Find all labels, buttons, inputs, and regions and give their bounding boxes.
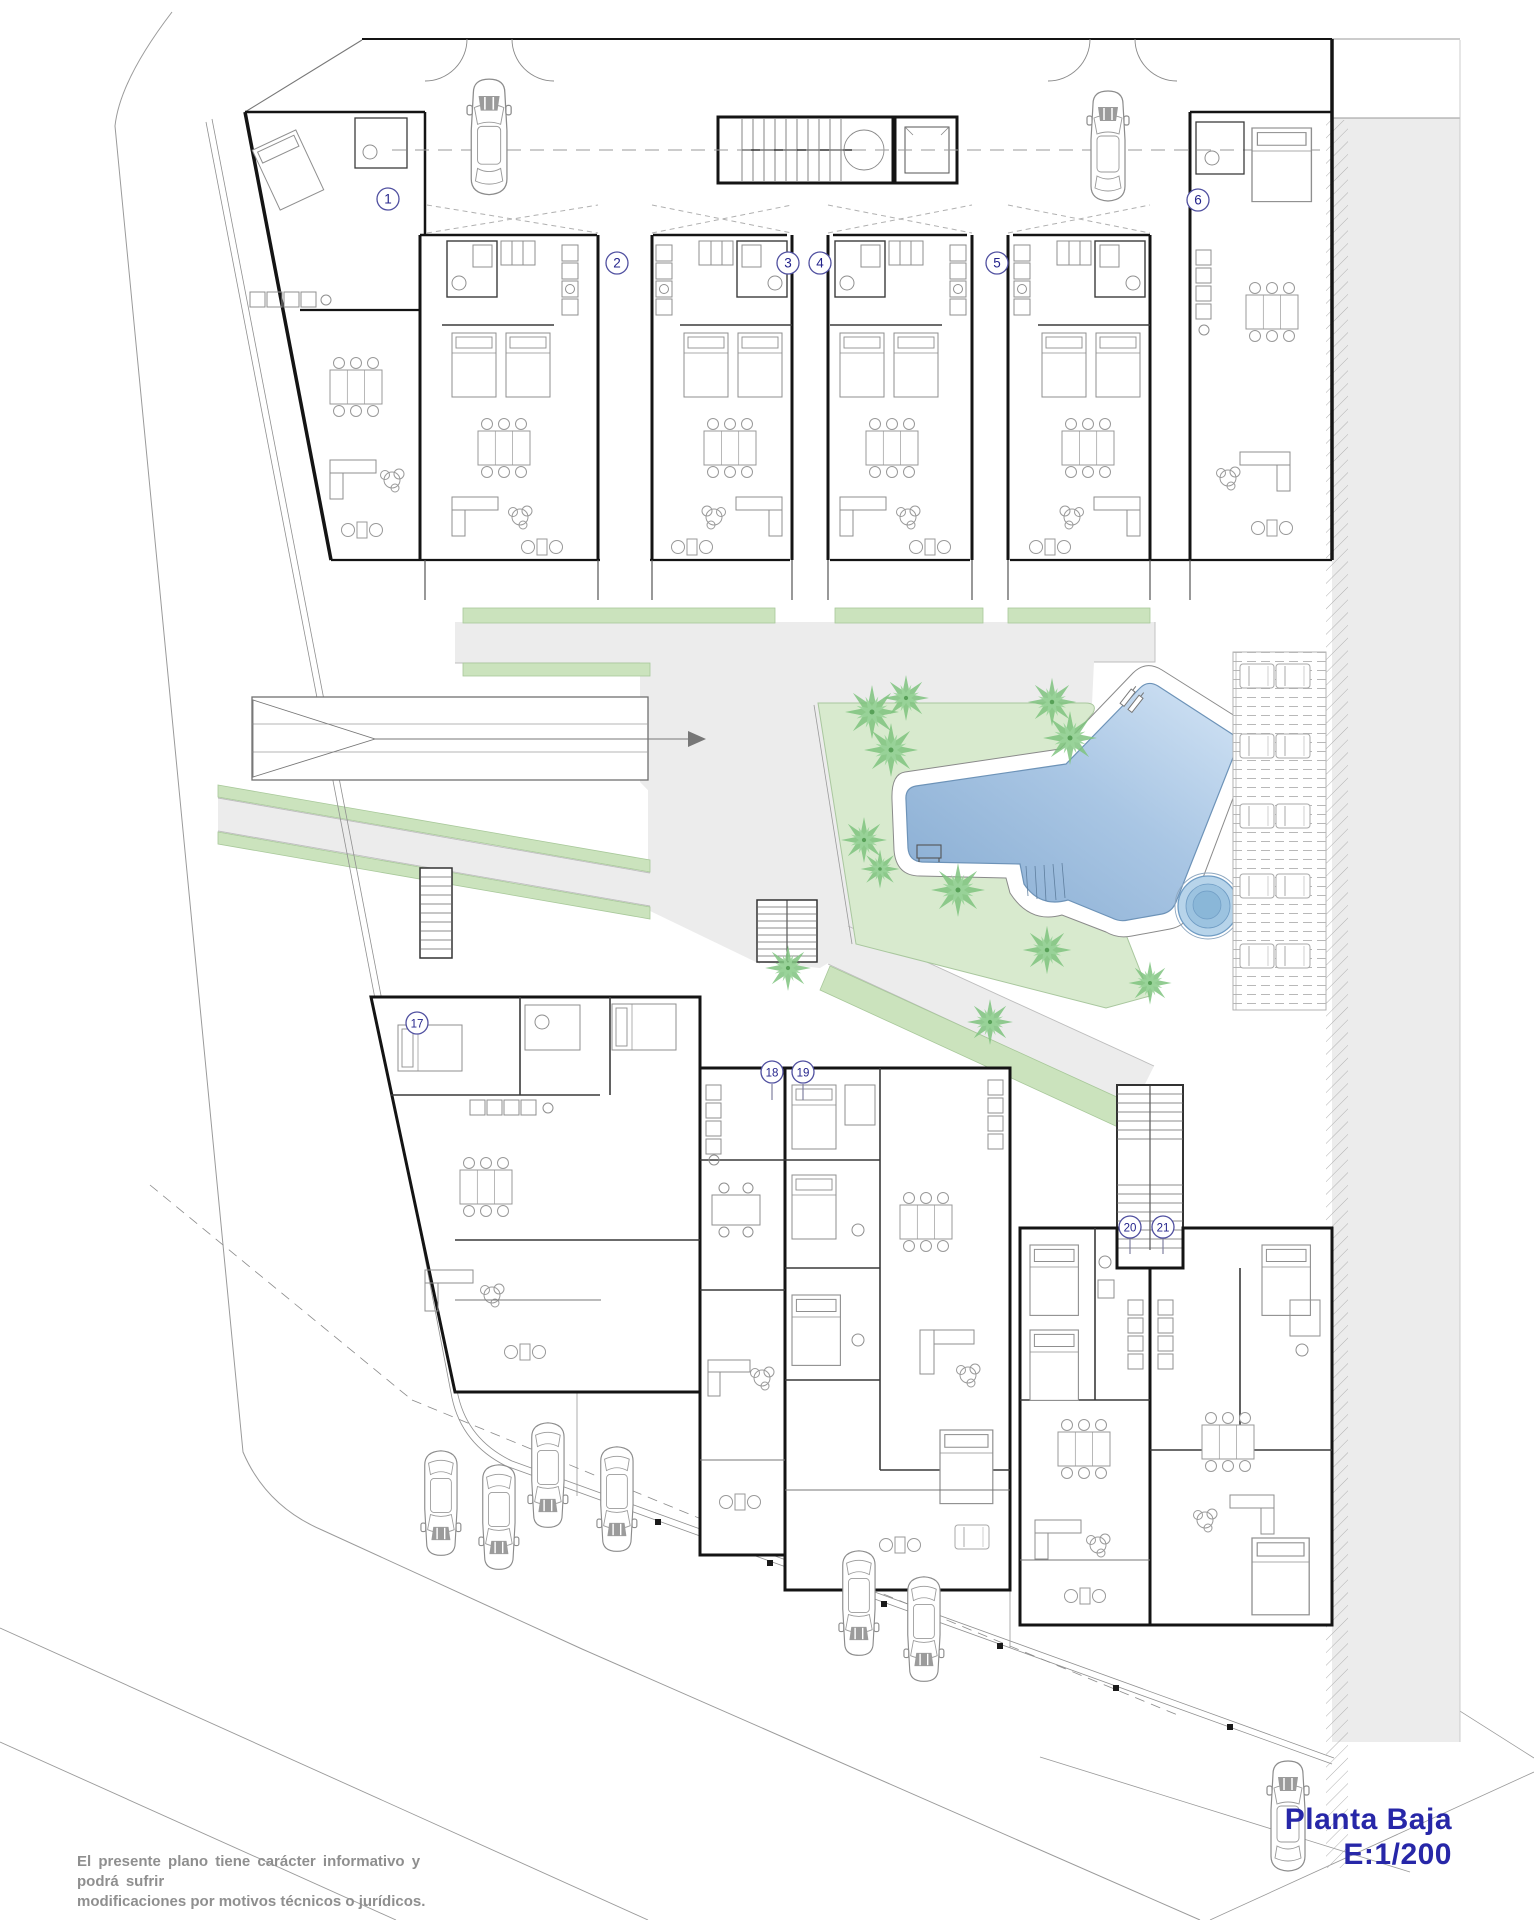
svg-text:1: 1 bbox=[384, 192, 392, 207]
car-icon bbox=[421, 1451, 461, 1556]
unit-marker-2: 2 bbox=[606, 252, 628, 274]
svg-text:19: 19 bbox=[797, 1068, 810, 1080]
palm-tree-icon bbox=[861, 850, 900, 889]
car-icon bbox=[904, 1577, 944, 1682]
bottom-building-left bbox=[371, 997, 1010, 1590]
disclaimer-line-1: El presente plano tiene carácter informa… bbox=[77, 1852, 433, 1892]
garage-ramp bbox=[252, 697, 706, 780]
palm-tree-icon bbox=[864, 723, 918, 777]
unit-marker-1: 1 bbox=[377, 188, 399, 210]
plan-name: Planta Baja bbox=[1285, 1803, 1452, 1836]
top-building bbox=[245, 39, 1332, 600]
sun-lounger-icon bbox=[1240, 804, 1274, 828]
stairs-left bbox=[420, 868, 452, 958]
svg-text:20: 20 bbox=[1124, 1223, 1137, 1235]
car-icon bbox=[467, 79, 511, 194]
palm-tree-icon bbox=[1128, 961, 1171, 1004]
sun-lounger-icon bbox=[1276, 734, 1310, 758]
unit-marker-20: 20 bbox=[1119, 1216, 1141, 1238]
svg-text:2: 2 bbox=[613, 256, 621, 271]
unit-6-interior bbox=[1196, 122, 1311, 536]
sun-lounger-icon bbox=[1240, 734, 1274, 758]
stairs-right bbox=[1117, 1085, 1183, 1268]
sun-lounger-icon bbox=[1240, 874, 1274, 898]
svg-text:4: 4 bbox=[816, 256, 824, 271]
car-icon bbox=[597, 1447, 637, 1552]
svg-text:3: 3 bbox=[784, 256, 792, 271]
car-icon bbox=[1087, 91, 1129, 201]
garage-door-arcs bbox=[425, 39, 1177, 81]
unit-marker-19: 19 bbox=[792, 1061, 814, 1083]
spa-jacuzzi bbox=[1175, 873, 1241, 939]
car-icon bbox=[528, 1423, 568, 1528]
disclaimer-line-2: modificaciones por motivos técnicos o ju… bbox=[77, 1892, 433, 1912]
car-icon bbox=[479, 1465, 519, 1570]
parking-markings bbox=[427, 205, 1150, 233]
svg-text:5: 5 bbox=[993, 256, 1001, 271]
unit-marker-17: 17 bbox=[406, 1012, 428, 1034]
car-icon bbox=[839, 1551, 879, 1656]
terrace-dividers bbox=[425, 560, 1190, 600]
sun-lounger-icon bbox=[1240, 944, 1274, 968]
palm-tree-icon bbox=[765, 945, 811, 991]
unit-marker-5: 5 bbox=[986, 252, 1008, 274]
unit-1-interior bbox=[250, 118, 407, 538]
palm-tree-icon bbox=[1023, 926, 1072, 975]
palm-tree-icon bbox=[931, 863, 985, 917]
bottom-building-right bbox=[1020, 1228, 1332, 1625]
unit-marker-18: 18 bbox=[761, 1061, 783, 1083]
svg-text:6: 6 bbox=[1194, 193, 1202, 208]
unit-marker-4: 4 bbox=[809, 252, 831, 274]
svg-text:17: 17 bbox=[411, 1019, 424, 1031]
floorplan-canvas: 1234561718192021 bbox=[0, 0, 1534, 1920]
sun-lounger-icon bbox=[1276, 874, 1310, 898]
page-title: Planta Baja E:1/200 bbox=[1032, 1802, 1452, 1872]
palm-tree-icon bbox=[967, 999, 1013, 1045]
sun-lounger-icon bbox=[1276, 944, 1310, 968]
palm-tree-icon bbox=[1043, 711, 1097, 765]
unit-marker-6: 6 bbox=[1187, 189, 1209, 211]
road-right bbox=[1326, 39, 1460, 1868]
plan-scale: E:1/200 bbox=[1343, 1838, 1452, 1871]
sun-lounger-icon bbox=[1240, 664, 1274, 688]
unit-marker-3: 3 bbox=[777, 252, 799, 274]
sun-lounger-icon bbox=[1276, 664, 1310, 688]
sun-lounger-icon bbox=[1276, 804, 1310, 828]
unit-marker-21: 21 bbox=[1152, 1216, 1174, 1238]
disclaimer-text: El presente plano tiene carácter informa… bbox=[77, 1852, 433, 1912]
palm-tree-icon bbox=[883, 675, 929, 721]
svg-text:21: 21 bbox=[1157, 1223, 1170, 1235]
svg-text:18: 18 bbox=[766, 1068, 779, 1080]
